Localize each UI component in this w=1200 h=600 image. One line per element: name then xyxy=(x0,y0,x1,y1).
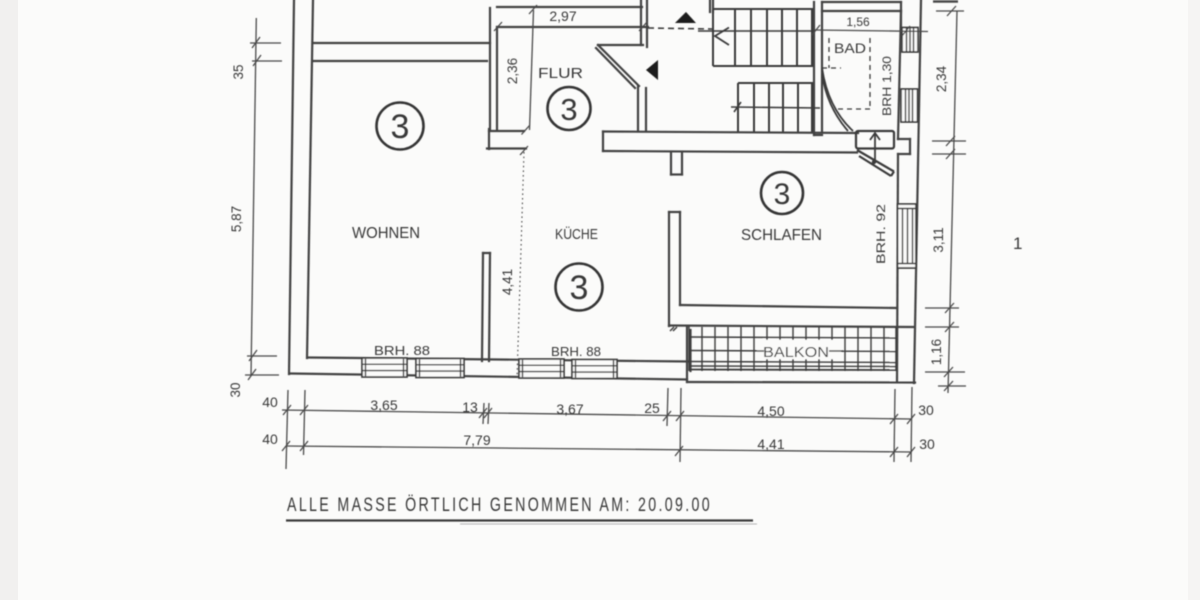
svg-text:3: 3 xyxy=(570,269,589,307)
svg-text:7,79: 7,79 xyxy=(463,432,490,448)
svg-text:1: 1 xyxy=(1013,234,1022,253)
svg-text:ALLE MASSE ÖRTLICH GENOMMEN AM: ALLE MASSE ÖRTLICH GENOMMEN AM: 20.09.00 xyxy=(287,494,712,516)
svg-text:5,87: 5,87 xyxy=(229,206,244,232)
svg-text:30: 30 xyxy=(918,402,934,418)
svg-text:35: 35 xyxy=(231,64,246,79)
svg-text:13: 13 xyxy=(462,399,478,415)
svg-text:25: 25 xyxy=(644,400,660,416)
svg-text:BAD: BAD xyxy=(834,40,866,56)
svg-text:4,50: 4,50 xyxy=(757,403,784,419)
svg-text:BRH 1,30: BRH 1,30 xyxy=(882,56,894,116)
svg-text:3: 3 xyxy=(391,108,410,146)
svg-text:40: 40 xyxy=(262,394,278,410)
svg-text:3: 3 xyxy=(774,178,791,211)
svg-text:SCHLAFEN: SCHLAFEN xyxy=(741,227,822,244)
svg-text:3,11: 3,11 xyxy=(931,227,946,252)
svg-text:1,16: 1,16 xyxy=(929,339,944,365)
svg-text:BRH. 88: BRH. 88 xyxy=(551,345,601,359)
svg-text:3,65: 3,65 xyxy=(370,397,397,413)
svg-text:3: 3 xyxy=(560,92,577,127)
svg-text:2,34: 2,34 xyxy=(934,65,949,92)
svg-text:40: 40 xyxy=(262,431,278,447)
svg-text:30: 30 xyxy=(228,382,243,397)
svg-text:BRH. 88: BRH. 88 xyxy=(374,344,430,358)
svg-text:3,67: 3,67 xyxy=(556,401,583,417)
svg-text:4,41: 4,41 xyxy=(757,436,784,452)
svg-text:30: 30 xyxy=(919,436,935,452)
svg-text:4,41: 4,41 xyxy=(500,269,515,295)
svg-text:1,56: 1,56 xyxy=(846,15,870,29)
svg-text:BALKON: BALKON xyxy=(763,344,829,361)
svg-text:2,36: 2,36 xyxy=(505,58,520,84)
svg-text:KÜCHE: KÜCHE xyxy=(555,225,598,243)
svg-text:FLUR: FLUR xyxy=(538,65,583,82)
svg-text:BRH. 92: BRH. 92 xyxy=(876,204,888,264)
svg-text:WOHNEN: WOHNEN xyxy=(352,225,420,242)
svg-text:2,97: 2,97 xyxy=(549,8,576,24)
